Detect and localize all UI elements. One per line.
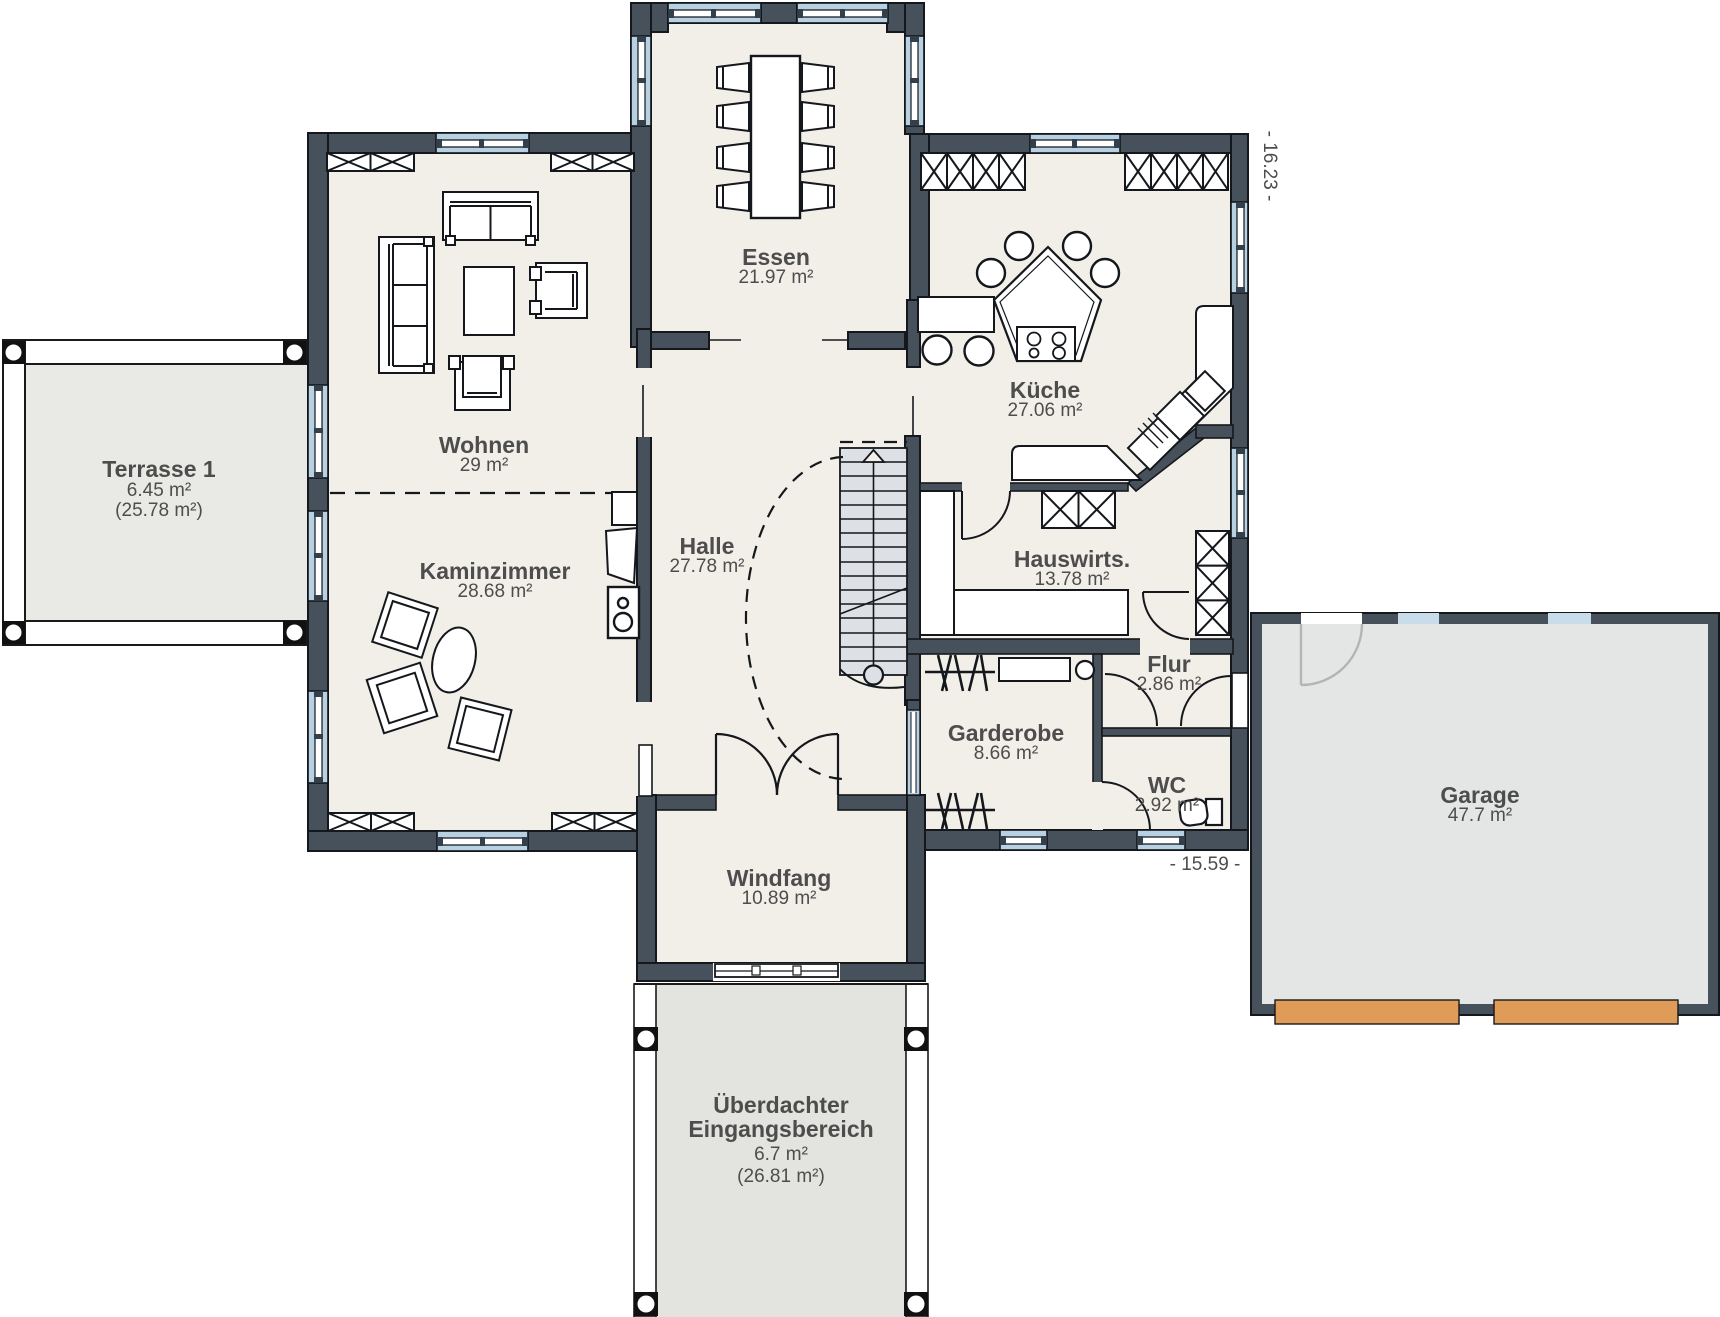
svg-text:27.78 m²: 27.78 m²: [670, 556, 745, 577]
svg-text:10.89 m²: 10.89 m²: [742, 888, 817, 909]
svg-text:- 16.23 -: - 16.23 -: [1259, 131, 1280, 202]
svg-text:6.7 m²: 6.7 m²: [754, 1144, 808, 1165]
svg-text:(25.78 m²): (25.78 m²): [115, 500, 203, 521]
svg-text:- 15.59 -: - 15.59 -: [1170, 854, 1241, 875]
svg-text:Überdachter: Überdachter: [713, 1092, 849, 1118]
svg-text:8.66 m²: 8.66 m²: [974, 743, 1038, 764]
svg-text:2.92 m²: 2.92 m²: [1135, 795, 1199, 816]
svg-text:Terrasse 1: Terrasse 1: [102, 456, 216, 482]
svg-text:13.78 m²: 13.78 m²: [1035, 569, 1110, 590]
svg-text:29 m²: 29 m²: [460, 455, 509, 476]
svg-text:6.45 m²: 6.45 m²: [127, 480, 191, 501]
svg-text:47.7 m²: 47.7 m²: [1448, 805, 1512, 826]
svg-text:21.97 m²: 21.97 m²: [739, 267, 814, 288]
svg-text:(26.81 m²): (26.81 m²): [737, 1166, 825, 1187]
svg-text:2.86 m²: 2.86 m²: [1137, 674, 1201, 695]
svg-text:Eingangsbereich: Eingangsbereich: [688, 1116, 873, 1142]
svg-text:27.06 m²: 27.06 m²: [1008, 400, 1083, 421]
svg-text:28.68 m²: 28.68 m²: [458, 581, 533, 602]
